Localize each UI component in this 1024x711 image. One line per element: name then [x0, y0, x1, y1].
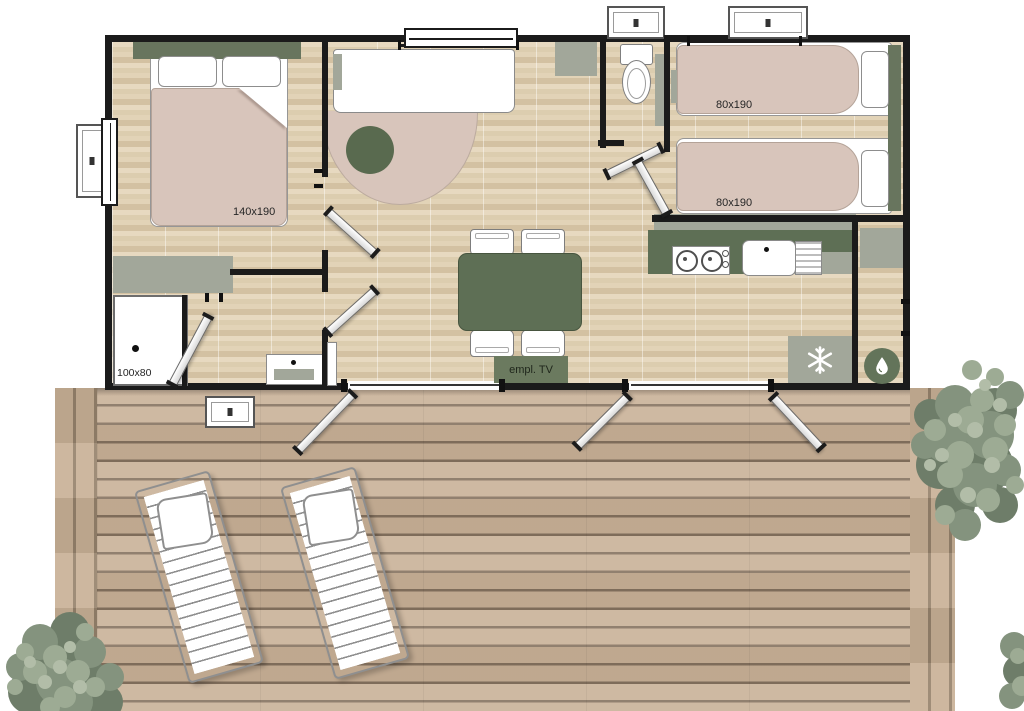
shower-drain-dot: [132, 345, 139, 352]
dining-chair: [521, 329, 565, 357]
tv-spot: empl. TV: [494, 356, 568, 383]
faucet-dot: [764, 247, 769, 252]
round-coffee-table: [346, 126, 394, 174]
snowflake-icon: [805, 345, 835, 375]
burner-icon: [701, 250, 723, 272]
master-bed-size-label: 140x190: [233, 206, 275, 218]
living-window: [404, 28, 518, 48]
lounger-cushion: [301, 488, 360, 547]
latch-icon: [90, 157, 95, 165]
tech-room-shelf: [860, 228, 903, 268]
hinge-tick: [901, 299, 910, 304]
tree-icon: [0, 572, 150, 711]
dressing-cabinet: [113, 256, 233, 293]
tree-icon: [900, 335, 1024, 555]
basin-drain-dot: [291, 360, 296, 365]
side-cabinet: [555, 42, 597, 76]
twin-bed-bottom-duvet: [677, 142, 859, 211]
sofa-armrest: [333, 54, 342, 90]
twin-bed-top-size-label: 80x190: [716, 99, 752, 111]
wall: [598, 140, 624, 146]
sofa: [333, 49, 515, 113]
pillow: [158, 56, 217, 87]
dining-table: [458, 253, 582, 331]
kitchen-sink: [742, 240, 796, 276]
hinge-tick: [314, 184, 323, 188]
bay-opening: [629, 381, 770, 390]
frame-tick: [398, 40, 401, 50]
hinge-tick: [205, 293, 209, 302]
hob-knob: [722, 261, 729, 268]
hob-knob: [722, 250, 729, 257]
twin-headboard-panel: [888, 45, 901, 211]
shower-size-label: 100x80: [117, 367, 151, 379]
door-frame-tick: [768, 379, 774, 392]
dining-chair: [470, 329, 514, 357]
wall: [664, 35, 670, 152]
twin-bed-bottom-size-label: 80x190: [716, 197, 752, 209]
wall: [852, 222, 858, 388]
wc-shelf: [655, 54, 664, 126]
tv-spot-label: empl. TV: [509, 364, 553, 376]
pillow: [222, 56, 281, 87]
wall: [230, 269, 328, 275]
hinge-tick: [219, 293, 223, 302]
latch-icon: [228, 408, 233, 416]
wall: [600, 35, 606, 148]
toilet-bowl: [622, 60, 651, 104]
frame-tick: [687, 36, 690, 46]
sink-drainboard: [795, 241, 822, 275]
bay-opening: [348, 381, 501, 390]
roof-vent-unit: [607, 6, 665, 39]
droplet-icon: [874, 356, 890, 376]
frame-tick: [799, 36, 802, 46]
fridge: [788, 336, 852, 383]
water-heater: [864, 348, 900, 384]
roof-vent-unit: [728, 6, 808, 39]
frame-tick: [516, 40, 519, 50]
lounger-cushion: [155, 492, 214, 551]
floorplan-canvas: 140x190 100x80 empl. TV 80x190 80x190: [0, 0, 1024, 711]
pillow: [861, 51, 889, 108]
bedroom-window: [101, 118, 118, 206]
latch-icon: [766, 19, 771, 27]
wall: [652, 215, 908, 222]
pillow: [861, 150, 889, 207]
twin-bed-top-duvet: [677, 45, 859, 114]
hinge-tick: [314, 169, 323, 173]
door-frame-tick: [499, 379, 505, 392]
washbasin-shelf: [274, 369, 314, 380]
bed-head-bar: [690, 40, 802, 43]
burner-icon: [676, 250, 698, 272]
tree-icon: [984, 626, 1024, 711]
deck-utility-box: [205, 396, 255, 428]
parked-door-slab: [327, 342, 337, 386]
latch-icon: [634, 19, 639, 27]
wall: [322, 35, 328, 177]
